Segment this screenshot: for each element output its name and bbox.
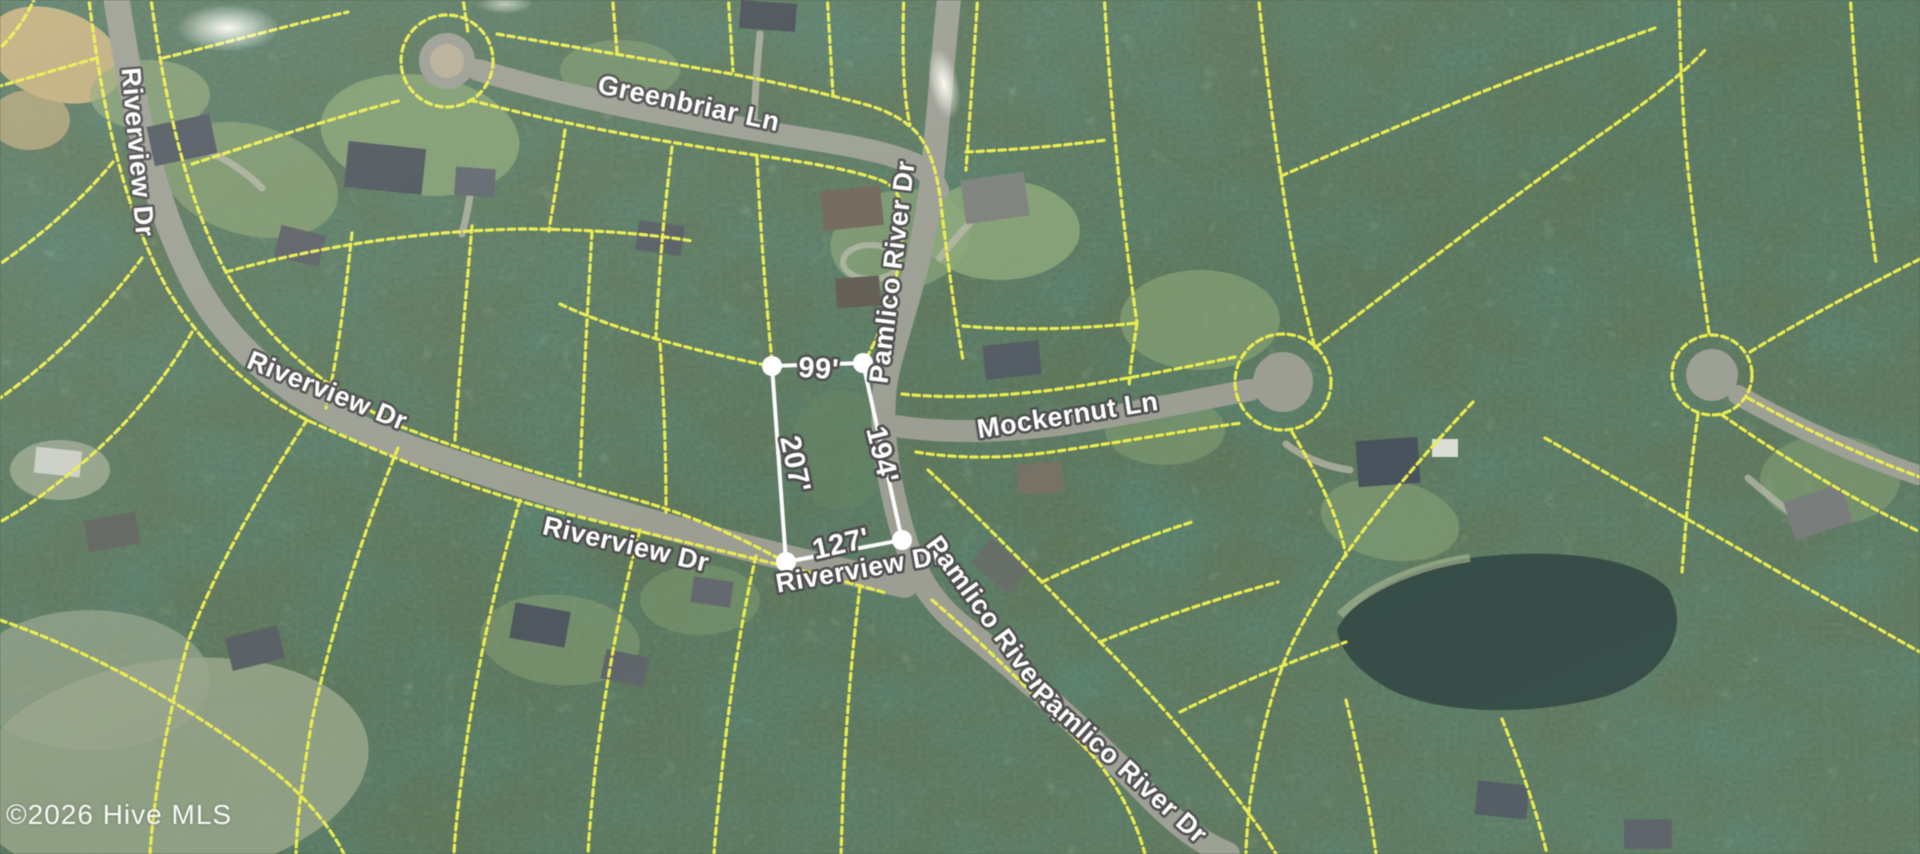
map-canvas[interactable]: Greenbriar LnRiverview DrRiverview DrRiv… — [0, 0, 1920, 854]
screen-glare — [0, 0, 1920, 854]
satellite-map: Greenbriar LnRiverview DrRiverview DrRiv… — [0, 0, 1920, 854]
mls-watermark: ©2026 Hive MLS — [6, 799, 232, 831]
